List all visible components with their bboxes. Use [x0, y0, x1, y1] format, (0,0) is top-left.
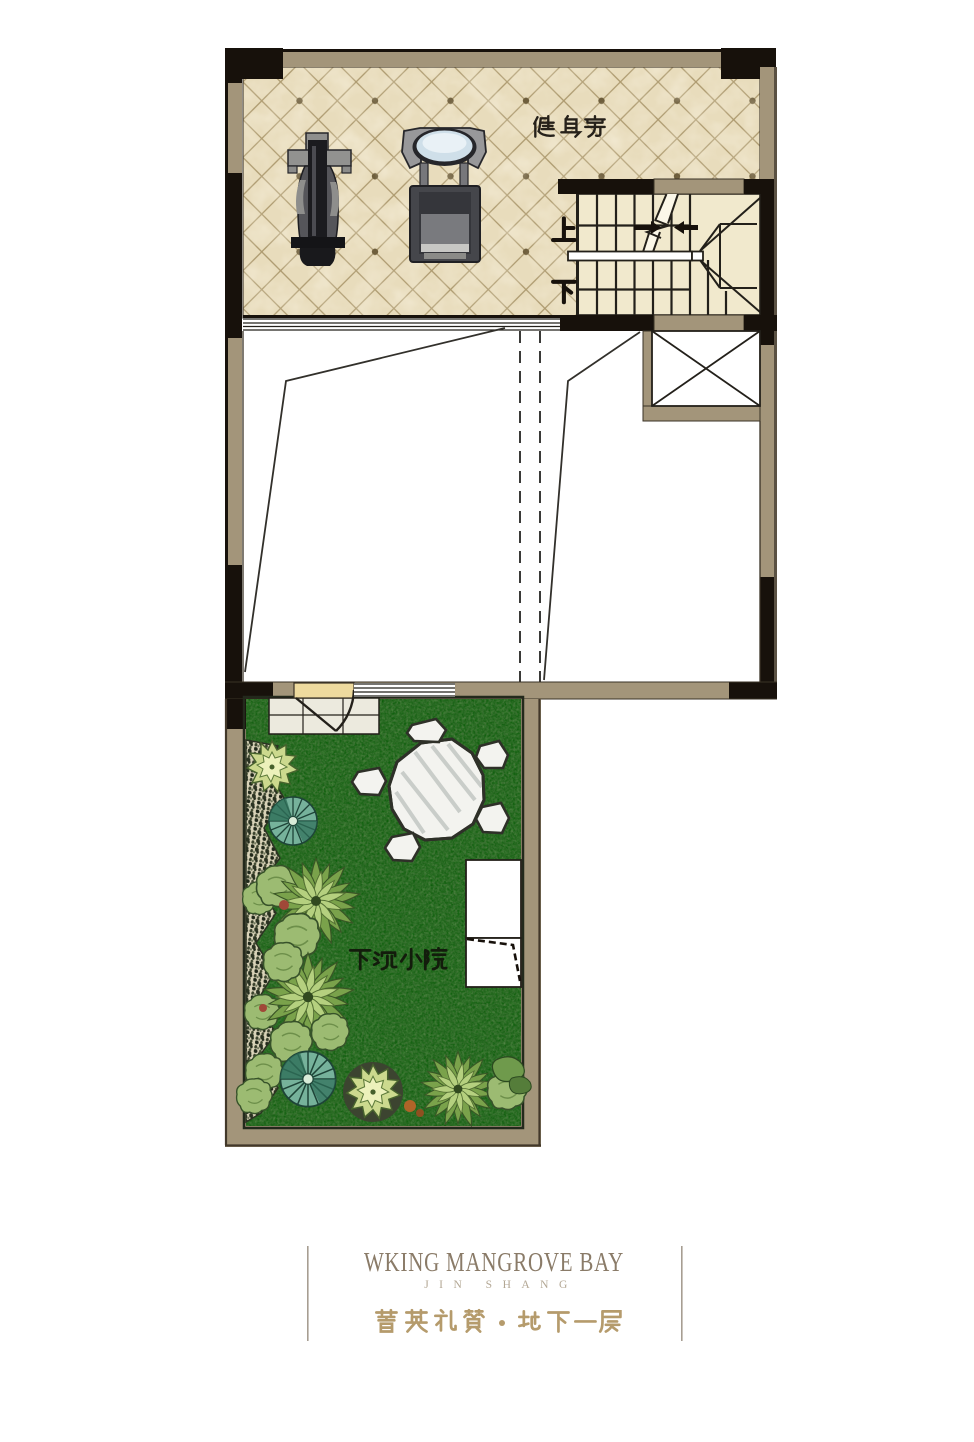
svg-text:JIN SHANG: JIN SHANG [424, 1279, 578, 1291]
svg-text:WKING MANGROVE BAY: WKING MANGROVE BAY [364, 1247, 624, 1277]
